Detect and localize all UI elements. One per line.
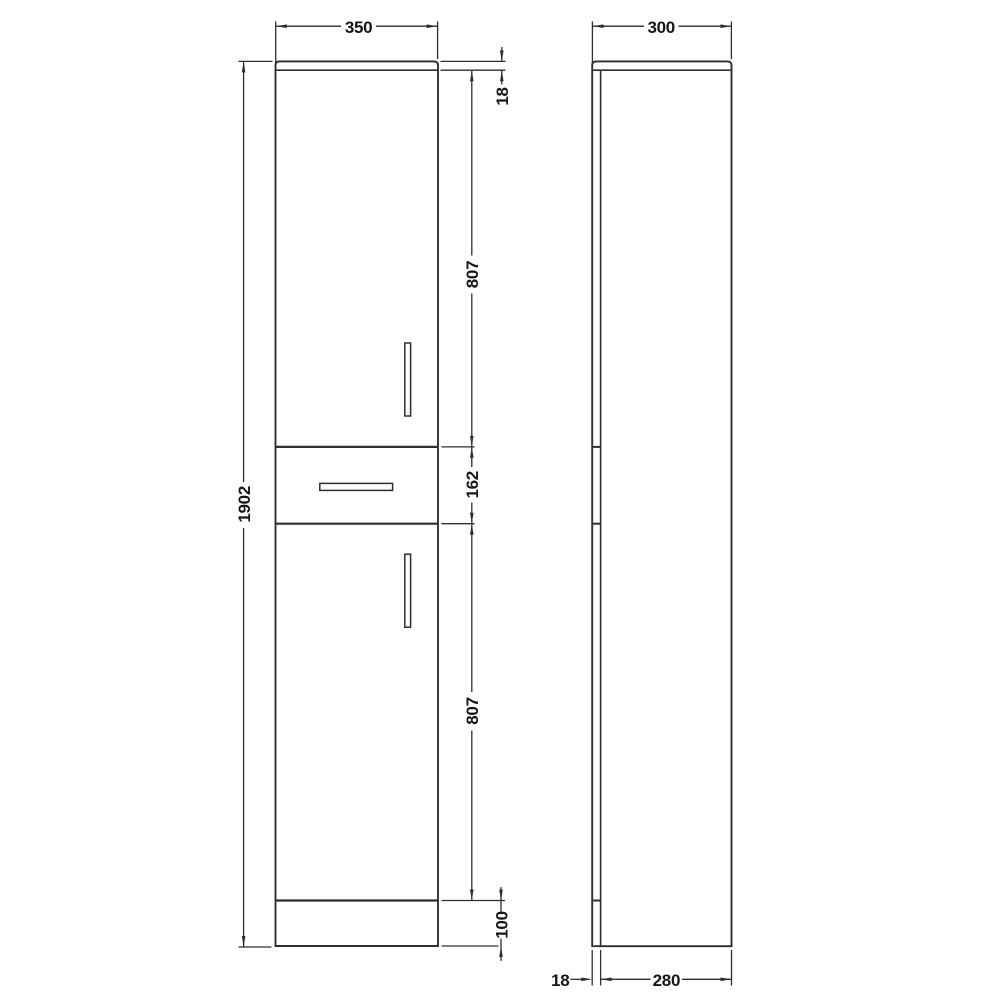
svg-text:1902: 1902 [235, 486, 254, 523]
svg-text:18: 18 [551, 971, 569, 990]
svg-text:807: 807 [463, 261, 482, 288]
svg-text:807: 807 [463, 697, 482, 724]
svg-text:300: 300 [647, 18, 674, 37]
svg-text:100: 100 [492, 911, 511, 938]
svg-text:18: 18 [493, 87, 512, 105]
svg-text:350: 350 [345, 18, 372, 37]
svg-text:162: 162 [463, 471, 482, 498]
svg-text:280: 280 [653, 971, 680, 990]
